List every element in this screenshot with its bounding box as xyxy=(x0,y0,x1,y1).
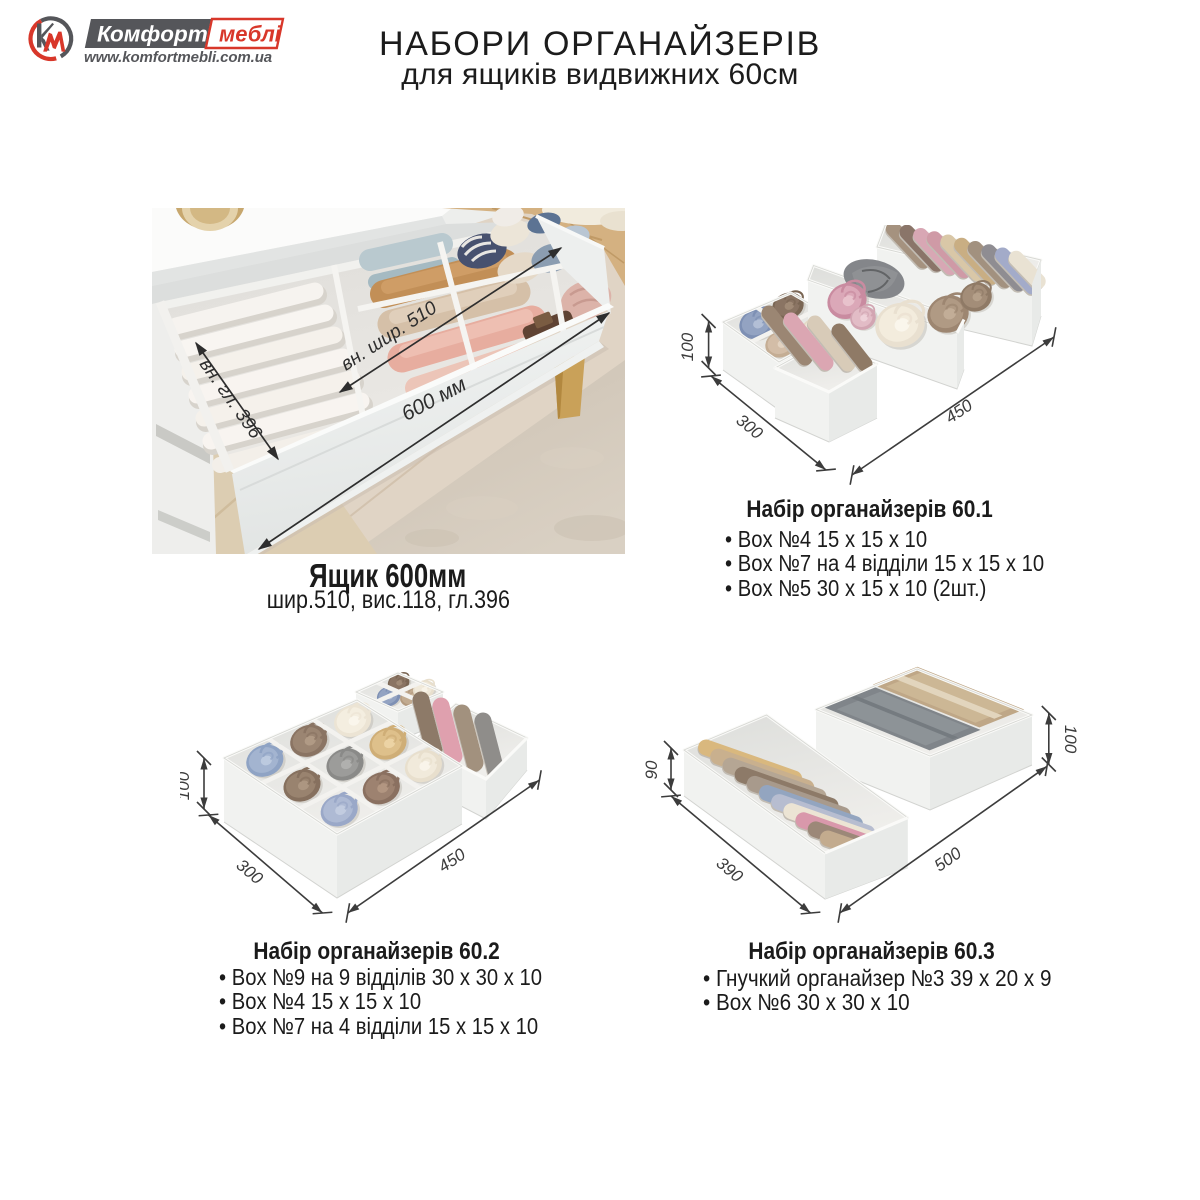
svg-text:90: 90 xyxy=(642,760,661,779)
svg-text:390: 390 xyxy=(713,853,747,886)
svg-text:100: 100 xyxy=(680,332,697,361)
svg-text:100: 100 xyxy=(180,771,193,800)
svg-text:500: 500 xyxy=(931,843,966,875)
svg-text:300: 300 xyxy=(732,410,766,443)
svg-text:100: 100 xyxy=(1061,725,1080,754)
svg-text:450: 450 xyxy=(942,395,977,427)
